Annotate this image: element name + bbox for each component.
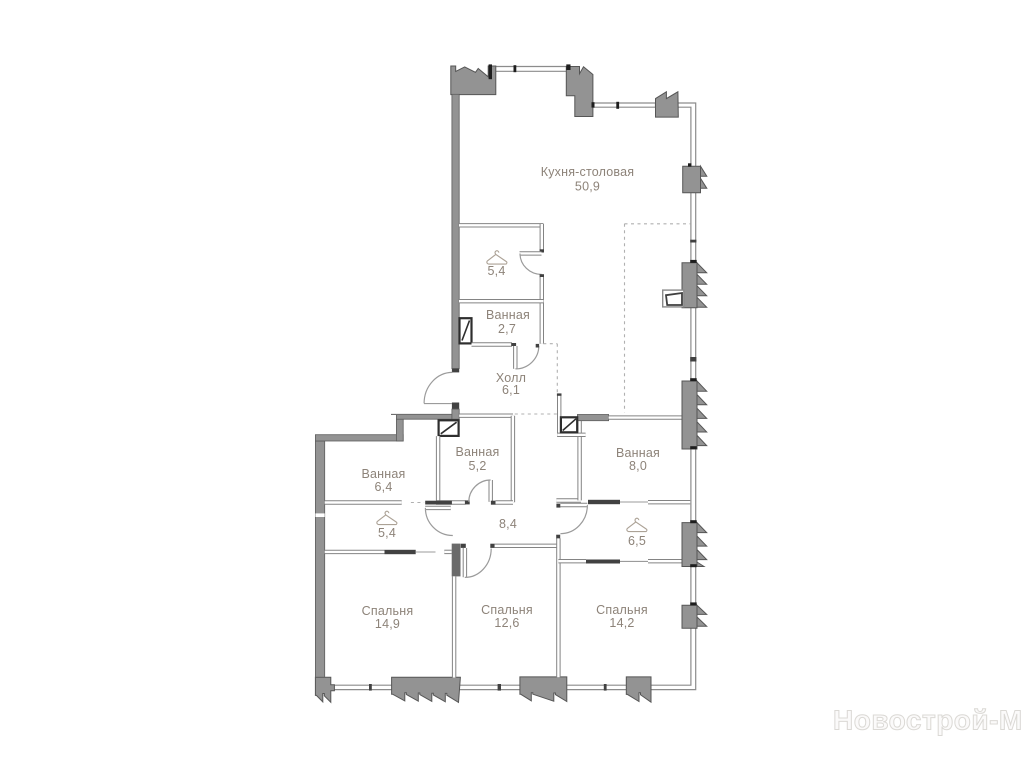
svg-text:8,4: 8,4 xyxy=(499,517,517,531)
svg-text:50,9: 50,9 xyxy=(575,180,600,194)
svg-text:Спальня: Спальня xyxy=(596,603,648,617)
svg-text:8,0: 8,0 xyxy=(629,459,647,473)
svg-text:Ванная: Ванная xyxy=(455,445,499,459)
svg-text:6,1: 6,1 xyxy=(502,383,520,397)
svg-text:Кухня-столовая: Кухня-столовая xyxy=(541,165,635,179)
svg-text:14,2: 14,2 xyxy=(609,616,634,630)
svg-text:Ванная: Ванная xyxy=(361,467,405,481)
svg-text:5,2: 5,2 xyxy=(469,459,487,473)
svg-text:2,7: 2,7 xyxy=(498,322,516,336)
svg-text:12,6: 12,6 xyxy=(494,616,519,630)
svg-text:Новострой-М: Новострой-М xyxy=(833,705,1023,736)
svg-text:14,9: 14,9 xyxy=(375,617,400,631)
svg-text:5,4: 5,4 xyxy=(378,526,396,540)
svg-text:Ванная: Ванная xyxy=(616,446,660,460)
svg-text:Спальня: Спальня xyxy=(481,603,533,617)
svg-text:5,4: 5,4 xyxy=(488,264,506,278)
svg-text:Спальня: Спальня xyxy=(362,604,414,618)
svg-text:6,5: 6,5 xyxy=(628,534,646,548)
svg-text:6,4: 6,4 xyxy=(375,480,393,494)
svg-text:Ванная: Ванная xyxy=(486,308,530,322)
